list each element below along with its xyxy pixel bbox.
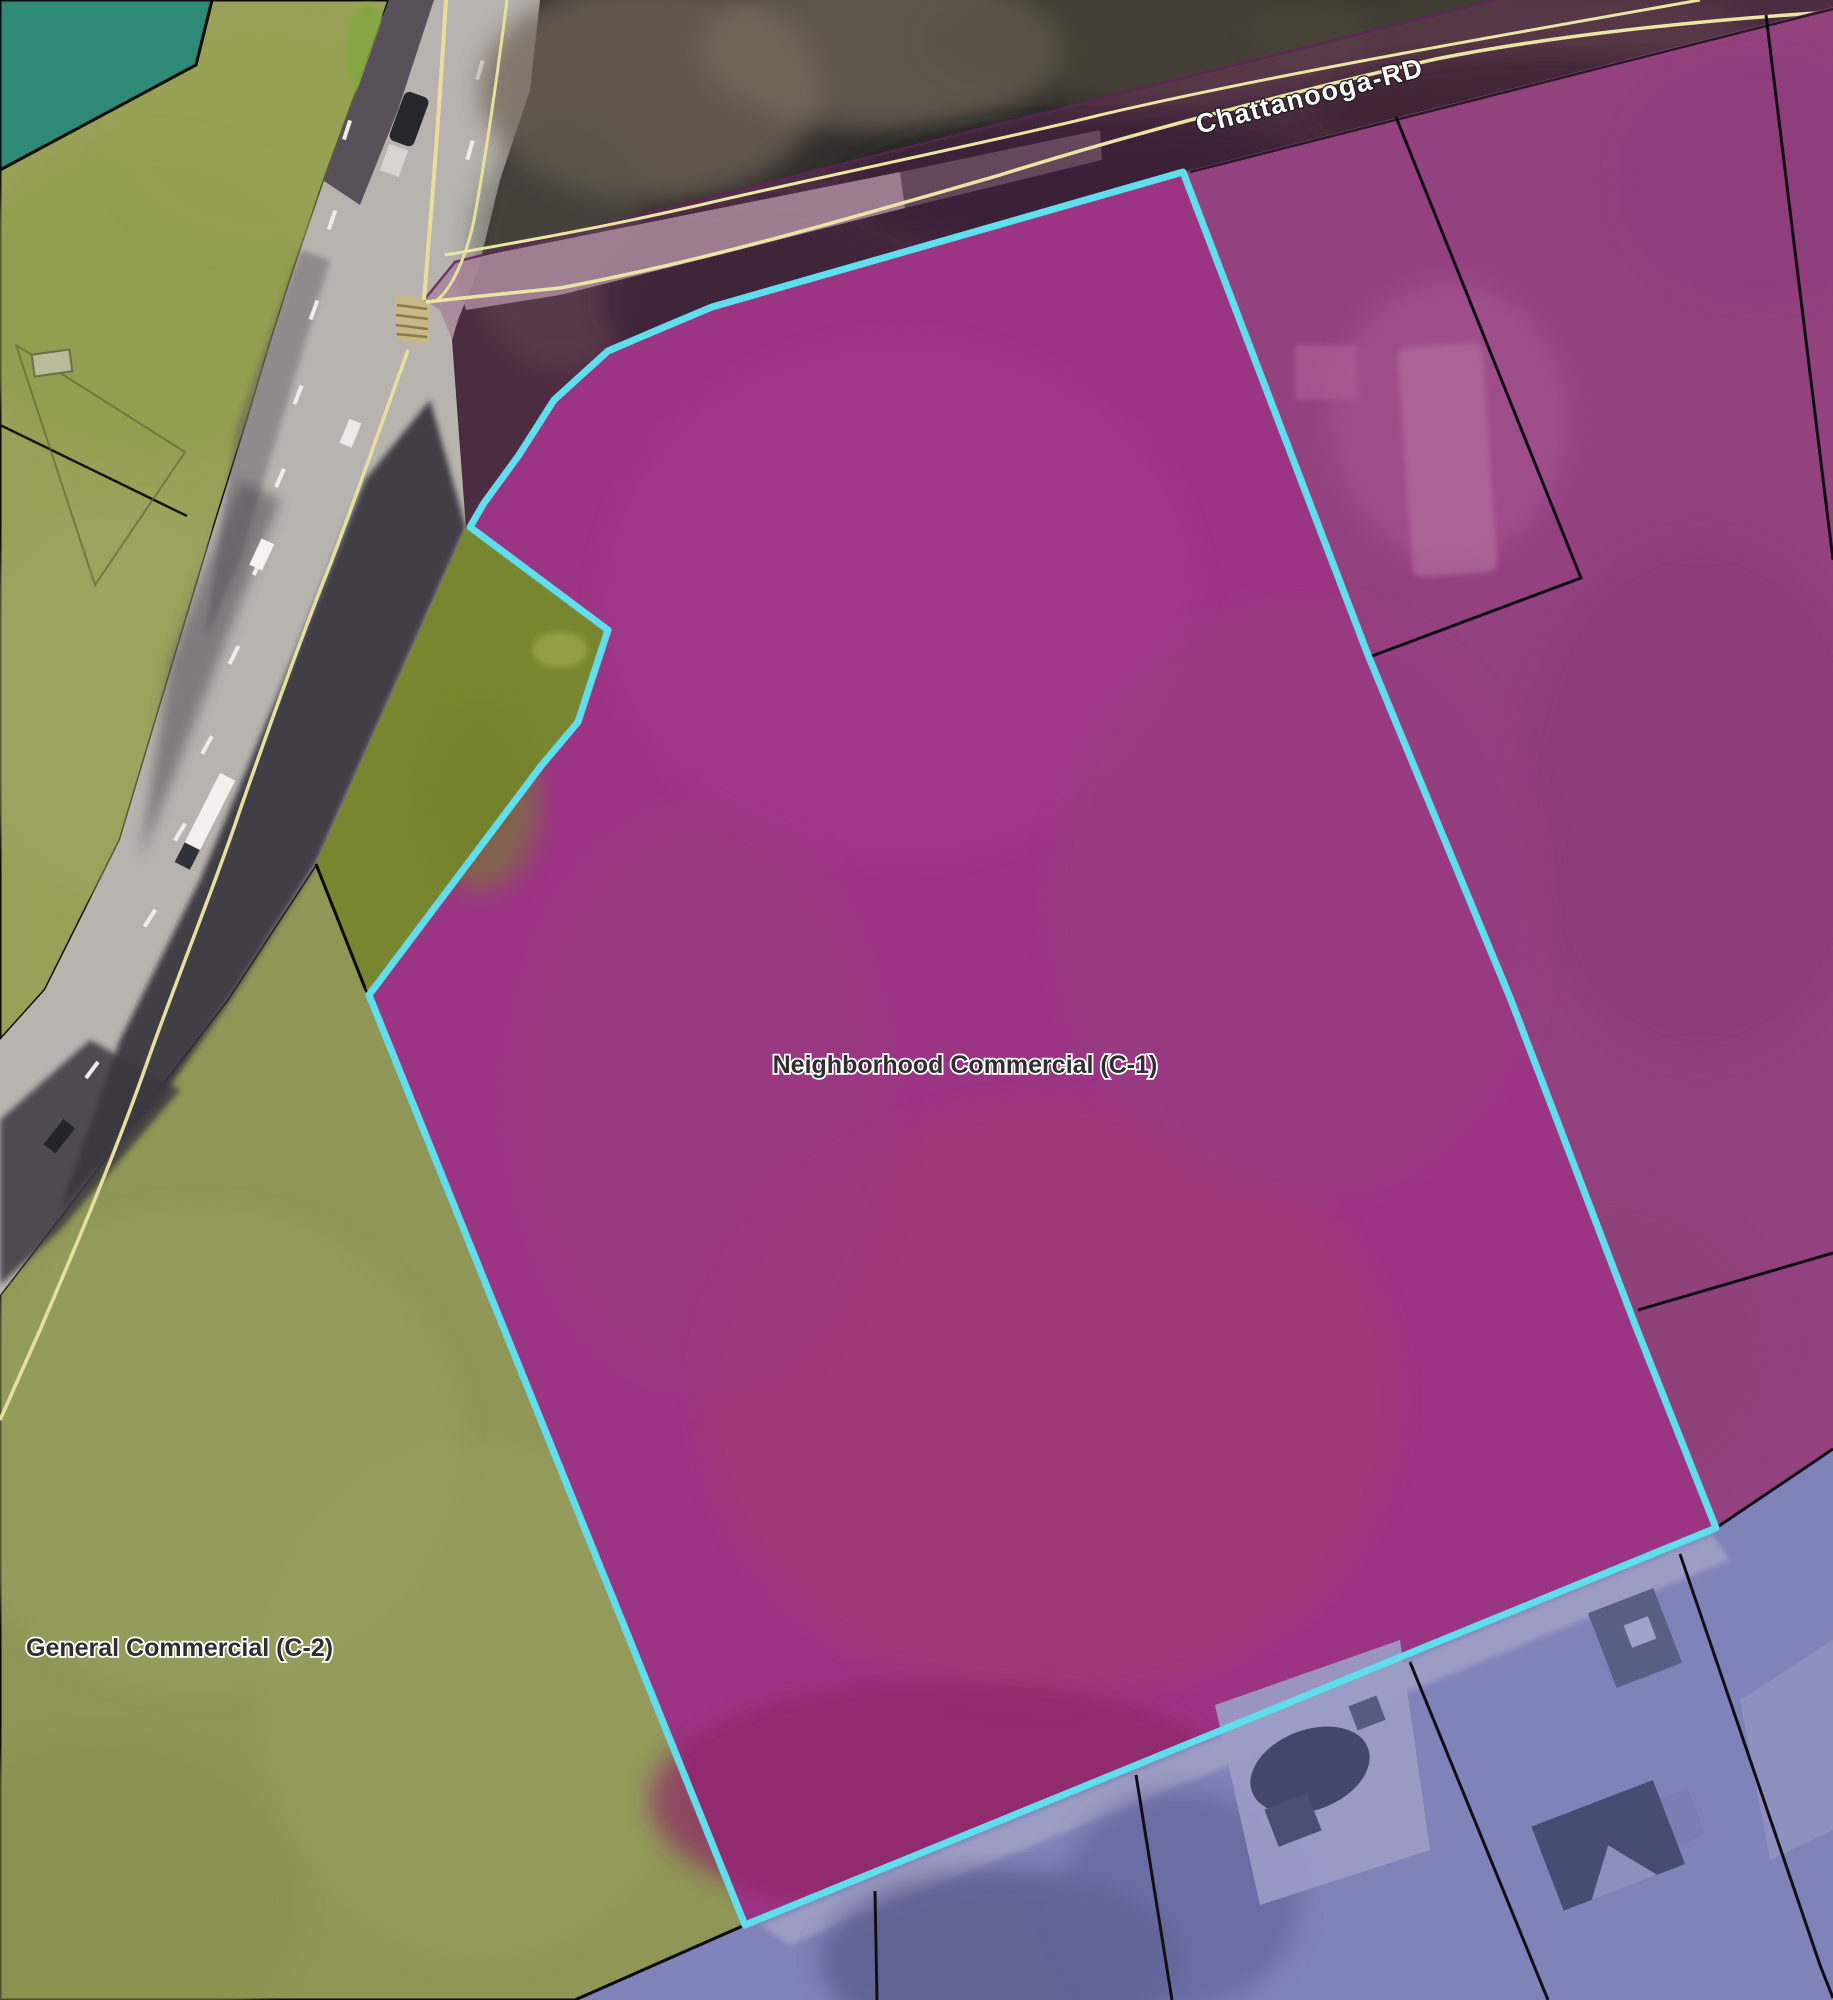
svg-text:Neighborhood Commercial (C-1): Neighborhood Commercial (C-1) — [773, 1051, 1158, 1079]
svg-text:General Commercial (C-2): General Commercial (C-2) — [26, 1634, 333, 1662]
